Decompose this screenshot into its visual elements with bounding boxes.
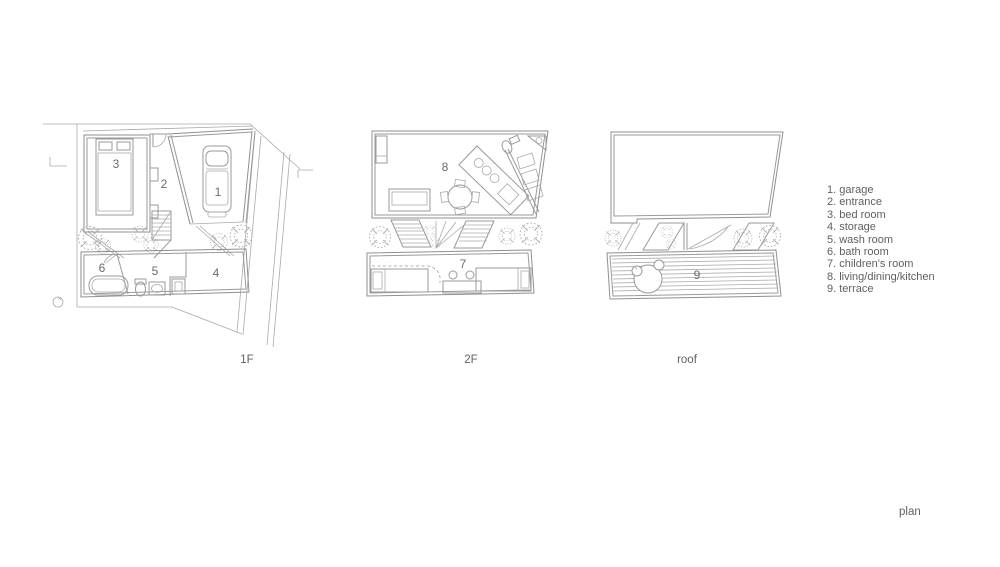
roof-outline	[611, 132, 783, 223]
tree-icon	[661, 226, 673, 238]
architectural-drawing: 3 2 1 6 5 4 1F	[0, 0, 1000, 567]
room-number-ldk: 8	[442, 160, 449, 174]
floor-plan-2f: 8 7 2F	[367, 131, 548, 366]
room-number-washroom: 5	[152, 264, 159, 278]
tree-icon	[370, 227, 391, 248]
toilet-icon	[135, 279, 146, 296]
sofa-icon	[389, 189, 430, 211]
roof-courtyard	[605, 223, 781, 250]
room-number-children: 7	[460, 257, 467, 271]
legend-item: 5. wash room	[827, 234, 935, 246]
bathtub-icon	[89, 276, 128, 295]
single-bed-icon	[476, 268, 531, 291]
childrens-room	[367, 250, 534, 296]
water-heater-icon	[172, 279, 185, 294]
staircase-2f-left	[391, 220, 431, 247]
entrance-hall	[150, 134, 168, 218]
living-dining-kitchen	[372, 131, 548, 218]
bathroom-wall	[117, 254, 128, 294]
room-number-entrance: 2	[161, 177, 168, 191]
bedroom	[84, 135, 150, 232]
tree-icon	[79, 227, 102, 250]
legend-item: 8. living/dining/kitchen	[827, 271, 935, 283]
legend-item: 7. children's room	[827, 258, 935, 270]
tree-icon	[211, 234, 228, 251]
single-bed-icon	[371, 269, 428, 292]
closet-icon	[376, 136, 387, 163]
tree-icon	[760, 226, 781, 247]
tree-icon	[499, 228, 515, 244]
terrace-table-icon	[632, 260, 664, 293]
courtyard-2f	[370, 220, 543, 249]
double-bed-icon	[96, 139, 133, 215]
dining-table-icon	[440, 179, 479, 214]
room-number-garage: 1	[215, 185, 222, 199]
legend-item: 2. entrance	[827, 196, 935, 208]
legend-item: 3. bed room	[827, 209, 935, 221]
manhole-icon	[53, 297, 63, 307]
survey-mark-icon	[298, 170, 313, 178]
staircase-2f-right	[454, 221, 494, 248]
tree-icon	[605, 230, 621, 246]
closet-icon	[150, 168, 158, 181]
desk-icon	[443, 271, 481, 293]
service-block-1f	[81, 249, 249, 297]
floor-label-1f: 1F	[240, 354, 253, 366]
tree-icon	[430, 238, 441, 249]
toilet-icon	[500, 135, 520, 155]
drawing-title: plan	[899, 506, 921, 518]
room-legend: 1. garage 2. entrance 3. bed room 4. sto…	[827, 184, 935, 296]
legend-item: 9. terrace	[827, 283, 935, 295]
sink-icon	[149, 282, 165, 295]
car-icon	[203, 146, 231, 217]
tree-icon	[144, 238, 158, 252]
garage	[168, 129, 255, 224]
room-number-bedroom: 3	[113, 157, 120, 171]
floor-plan-1f: 3 2 1 6 5 4 1F	[43, 124, 313, 366]
basin-icon	[536, 138, 542, 144]
room-number-bathroom: 6	[99, 261, 106, 275]
legend-item: 1. garage	[827, 184, 935, 196]
survey-mark-icon	[50, 157, 67, 166]
tree-icon	[734, 229, 752, 247]
floor-label-roof: roof	[677, 354, 698, 366]
door-swing-icon	[153, 134, 166, 147]
legend-item: 6. bath room	[827, 246, 935, 258]
room-number-storage: 4	[213, 266, 220, 280]
tree-icon	[230, 225, 252, 247]
roof-plan: 9 roof	[605, 132, 783, 366]
legend-item: 4. storage	[827, 221, 935, 233]
tree-icon	[520, 223, 542, 245]
room-number-terrace: 9	[694, 268, 701, 282]
floor-label-2f: 2F	[464, 354, 477, 366]
tree-icon	[424, 225, 436, 237]
